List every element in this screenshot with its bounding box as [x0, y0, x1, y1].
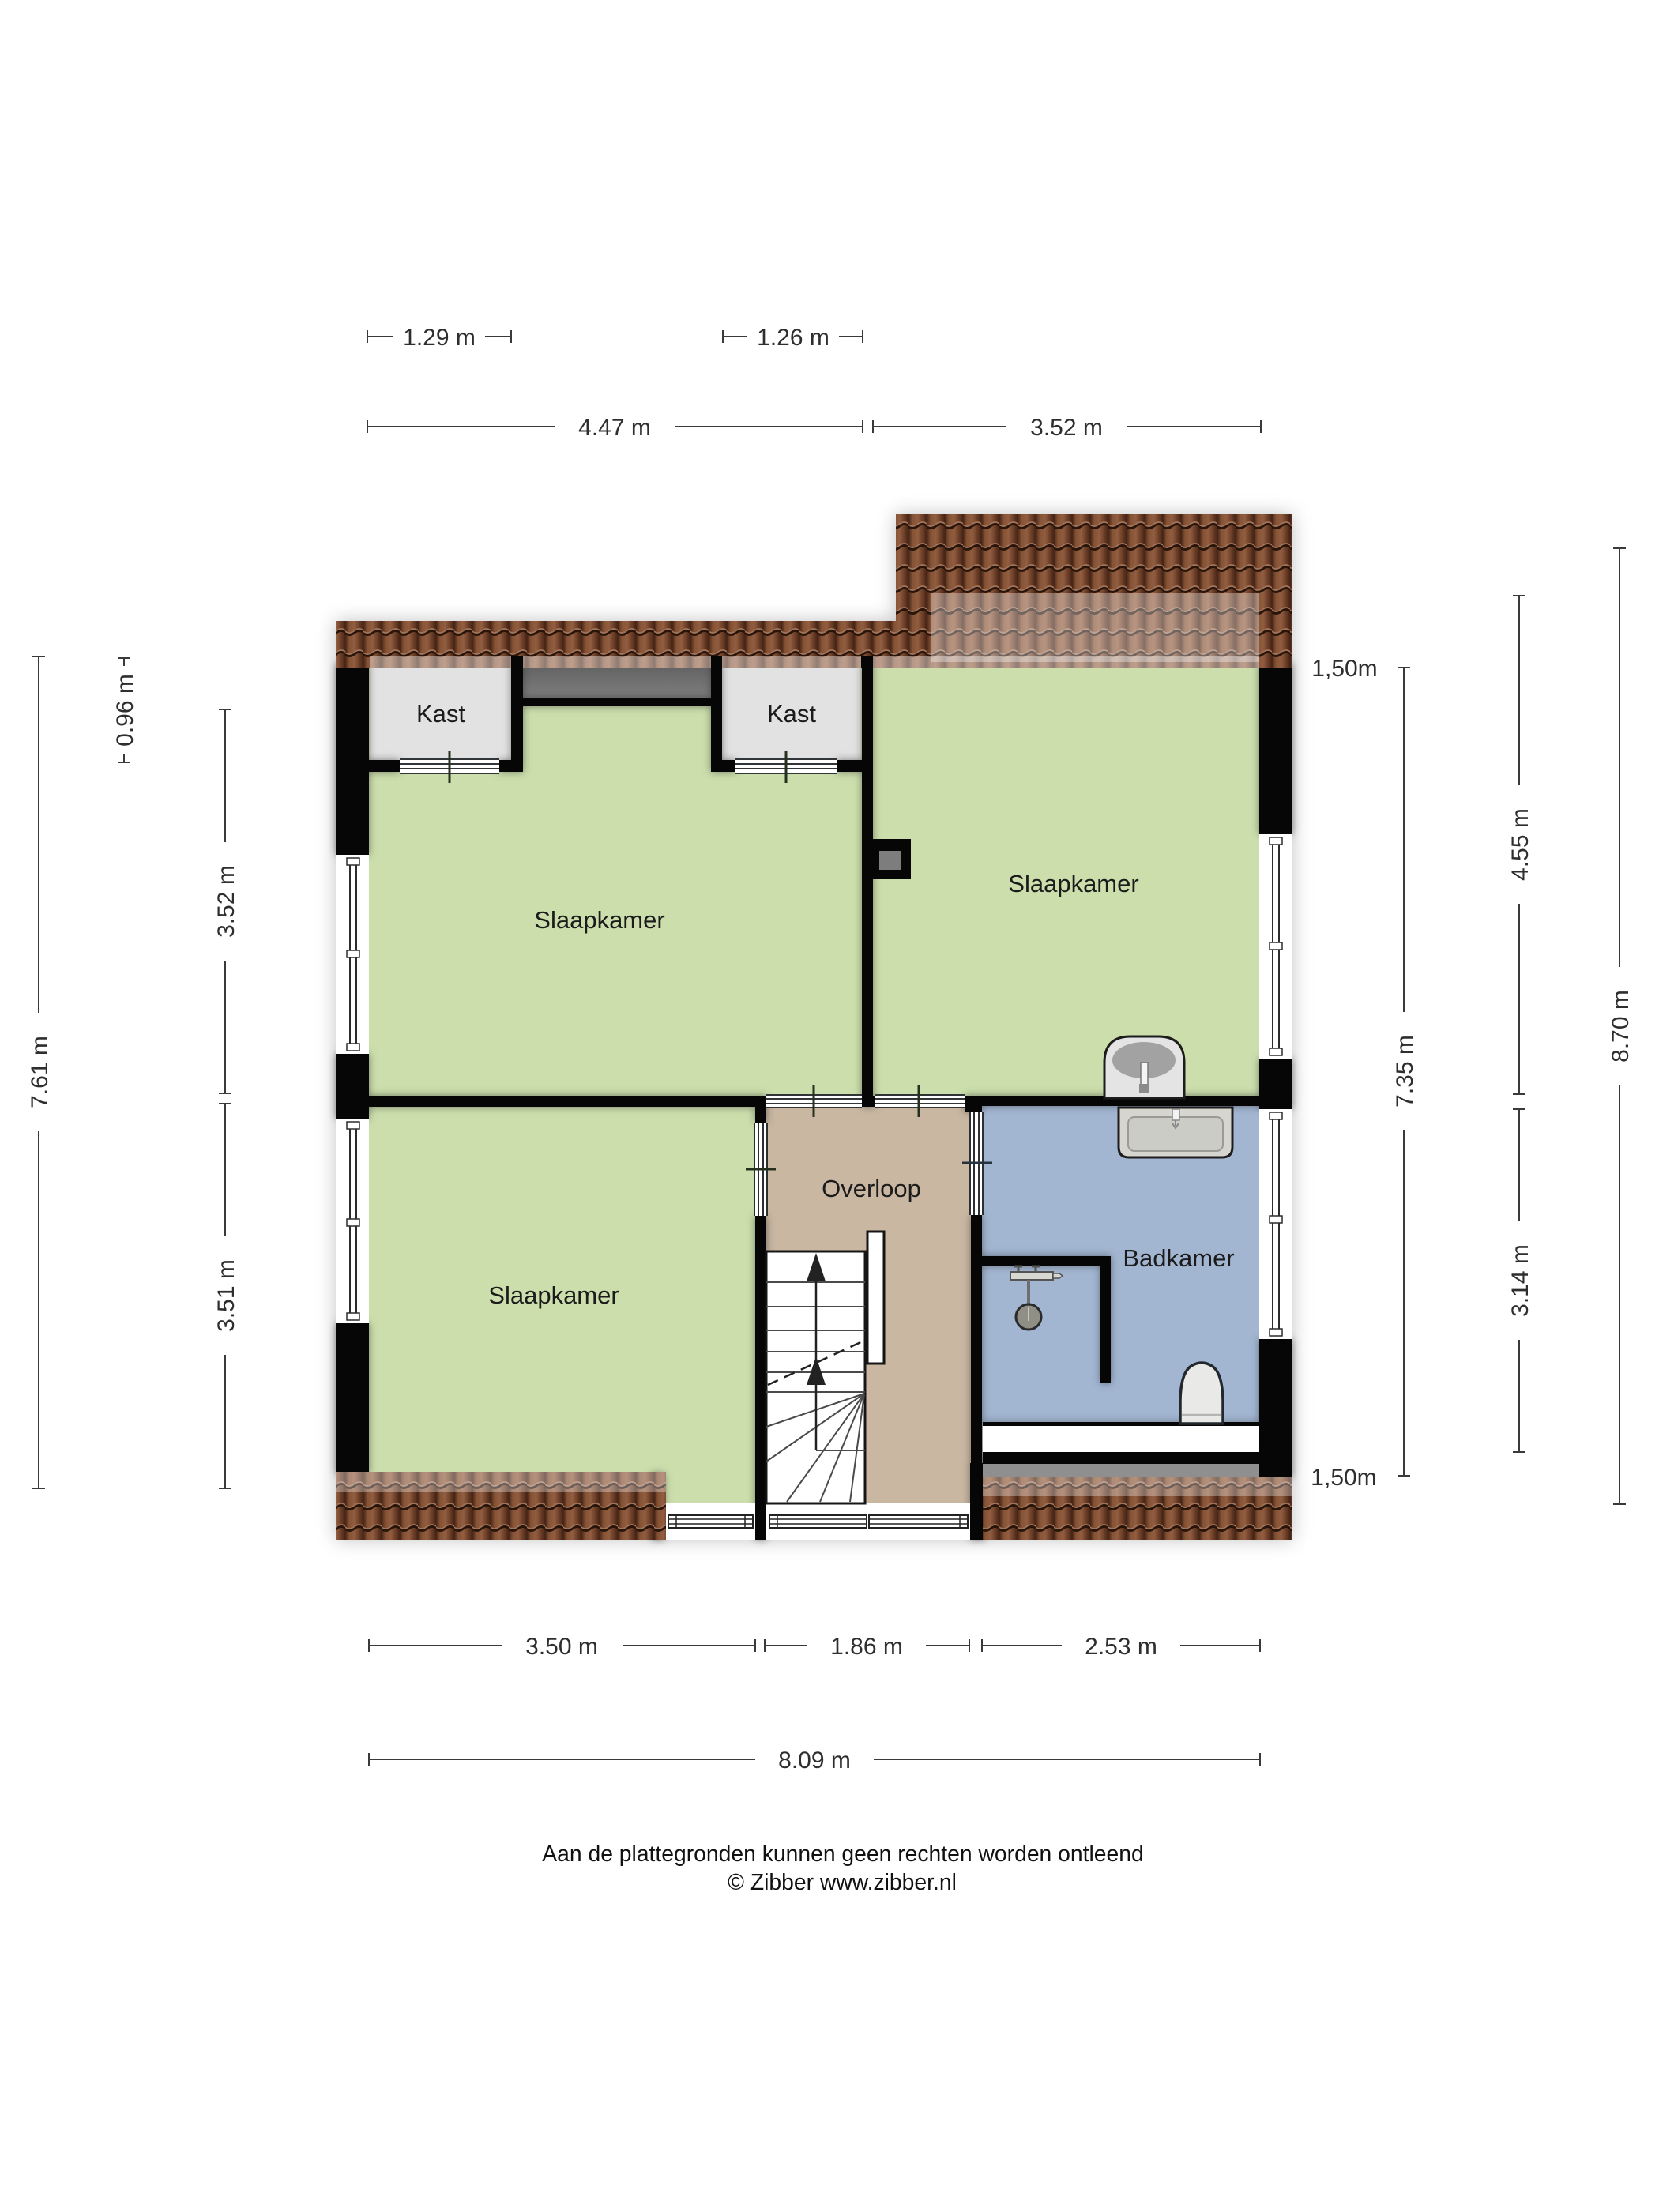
svg-text:Badkamer: Badkamer: [1123, 1244, 1234, 1272]
svg-text:Kast: Kast: [767, 700, 816, 728]
svg-text:7.35 m: 7.35 m: [1392, 1035, 1418, 1108]
svg-text:1.29 m: 1.29 m: [403, 325, 476, 351]
svg-text:4.47 m: 4.47 m: [578, 415, 651, 441]
svg-text:3.52 m: 3.52 m: [213, 865, 239, 938]
svg-text:1,50m: 1,50m: [1311, 656, 1377, 682]
svg-text:Overloop: Overloop: [822, 1175, 921, 1202]
svg-text:4.55 m: 4.55 m: [1507, 808, 1533, 881]
svg-text:Slaapkamer: Slaapkamer: [488, 1281, 619, 1309]
svg-text:Slaapkamer: Slaapkamer: [1008, 870, 1138, 897]
svg-text:Aan de plattegronden kunnen ge: Aan de plattegronden kunnen geen rechten…: [542, 1841, 1143, 1866]
svg-text:8.70 m: 8.70 m: [1608, 990, 1634, 1063]
svg-text:3.52 m: 3.52 m: [1030, 415, 1103, 441]
svg-text:8.09 m: 8.09 m: [778, 1747, 851, 1774]
svg-text:1.86 m: 1.86 m: [830, 1634, 903, 1660]
svg-text:0.96 m: 0.96 m: [112, 674, 138, 747]
svg-text:© Zibber www.zibber.nl: © Zibber www.zibber.nl: [728, 1869, 957, 1894]
svg-text:Kast: Kast: [416, 700, 465, 728]
svg-text:3.51 m: 3.51 m: [213, 1259, 239, 1332]
svg-text:Slaapkamer: Slaapkamer: [534, 906, 664, 934]
svg-text:1.26 m: 1.26 m: [757, 325, 829, 351]
svg-text:1,50m: 1,50m: [1311, 1465, 1376, 1491]
svg-text:7.61 m: 7.61 m: [27, 1036, 53, 1108]
svg-text:3.14 m: 3.14 m: [1507, 1244, 1533, 1317]
svg-text:2.53 m: 2.53 m: [1085, 1634, 1157, 1660]
svg-text:3.50 m: 3.50 m: [525, 1634, 598, 1660]
